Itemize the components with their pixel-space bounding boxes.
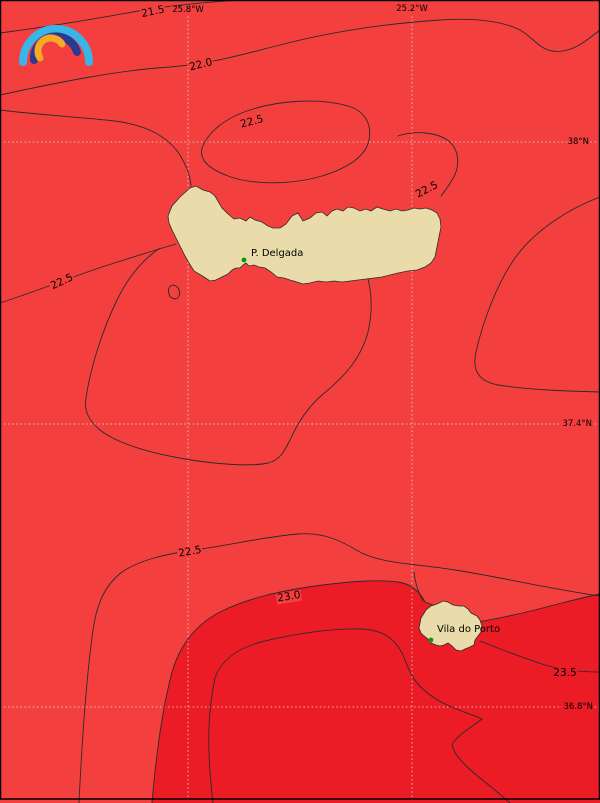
city-marker-p-delgada (242, 258, 247, 263)
isotherm-label-23-5: 23.5 (552, 668, 577, 679)
warm-water-fill (152, 581, 600, 803)
lat-label-38n: 38°N (567, 138, 590, 147)
lat-label-36-8n: 36.8°N (562, 703, 594, 712)
lon-label-25-2w: 25.2°W (395, 5, 429, 14)
sst-map: 25.8°W 25.2°W 38°N 37.4°N 36.8°N 21.5 22… (0, 0, 600, 803)
city-label-vila-do-porto: Vila do Porto (437, 625, 500, 635)
lat-label-37-4n: 37.4°N (561, 420, 593, 429)
city-label-p-delgada: P. Delgada (251, 249, 303, 259)
map-graphics (0, 0, 600, 803)
city-marker-vila-do-porto (429, 638, 434, 643)
lon-label-25-8w: 25.8°W (171, 6, 205, 15)
